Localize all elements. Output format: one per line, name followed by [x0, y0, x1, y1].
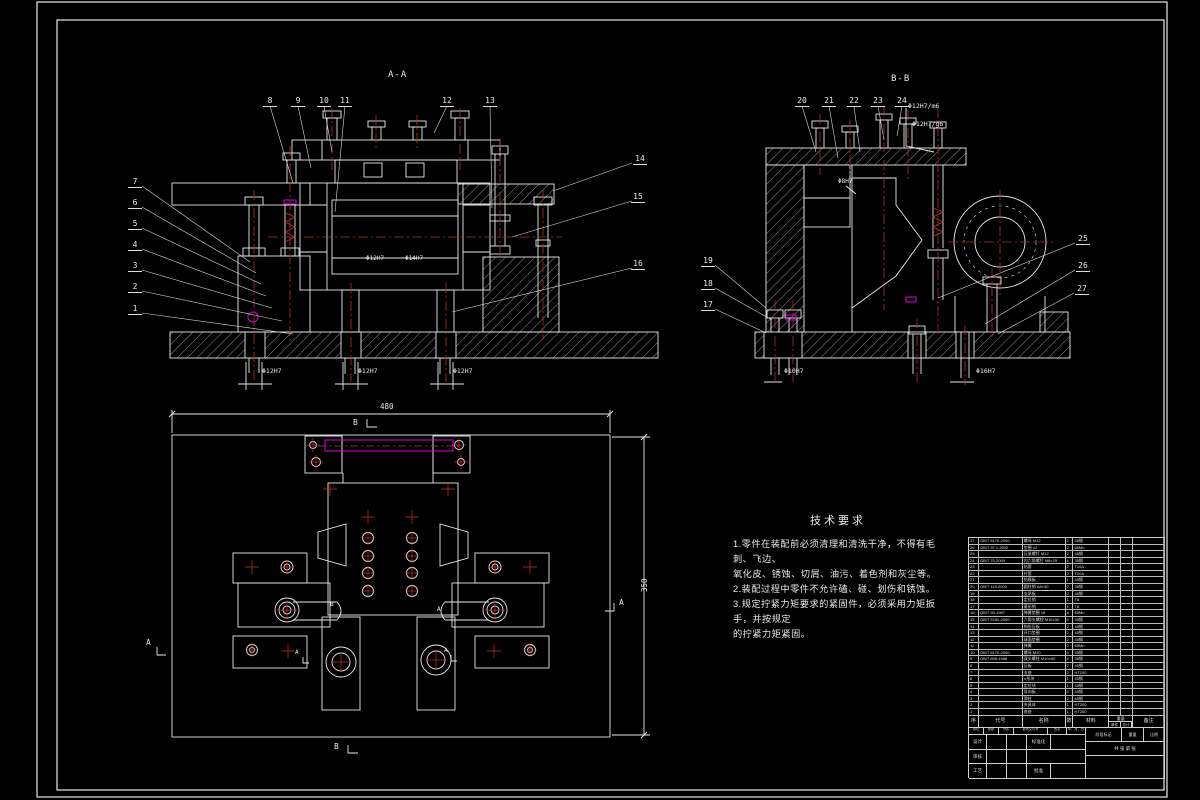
- parts-cell: [1133, 604, 1165, 611]
- parts-row: 26GB/T 97.1-2002垫圈 12265Mn: [969, 545, 1165, 552]
- parts-cell: 3: [969, 696, 979, 703]
- tech-req-line: 2.装配过程中零件不允许磕、碰、划伤和锈蚀。: [733, 582, 943, 597]
- parts-cell: [1133, 656, 1165, 663]
- front-highlights: [248, 200, 296, 322]
- side-view-geometry: [755, 108, 1070, 382]
- parts-row: 16GB/T 93-1987弹簧垫圈 16465Mn: [969, 610, 1165, 617]
- parts-cell: 2: [969, 702, 979, 709]
- parts-cell: [1109, 571, 1121, 578]
- parts-cell: [1121, 577, 1133, 584]
- parts-row: 2夹具体1HT200: [969, 702, 1165, 709]
- parts-cell: 4: [1066, 650, 1074, 657]
- parts-cell: [1121, 650, 1133, 657]
- parts-cell: [1133, 709, 1165, 716]
- parts-cell: [1121, 696, 1133, 703]
- parts-cell: [979, 564, 1023, 571]
- parts-cell: [1109, 591, 1121, 598]
- callout-7: 7: [128, 177, 142, 188]
- parts-cell: 支座: [1023, 670, 1066, 677]
- parts-cell: [979, 676, 1023, 683]
- parts-cell: 24: [969, 558, 979, 565]
- parts-cell: T8: [1073, 604, 1109, 611]
- parts-cell: T10A: [1073, 571, 1109, 578]
- parts-cell: 15: [969, 617, 979, 624]
- parts-cell: 45钢: [1073, 624, 1109, 631]
- callout-3: 3: [128, 261, 142, 272]
- tb-stage: 阶段标记: [1086, 728, 1122, 742]
- front-view-geometry: [170, 111, 658, 390]
- parts-cell: [1133, 610, 1165, 617]
- tb-check-date: [1007, 750, 1027, 764]
- callout-24: 24: [895, 96, 909, 107]
- parts-cell: [1133, 538, 1165, 545]
- parts-cell: [1109, 558, 1121, 565]
- parts-row: 11弹簧265Mn: [969, 643, 1165, 650]
- parts-cell: [979, 683, 1023, 690]
- parts-cell: 2: [1066, 564, 1074, 571]
- tb-design: 设计: [969, 735, 987, 750]
- side-highlights: [786, 297, 916, 320]
- callout-10: 10: [317, 96, 331, 107]
- parts-cell: [1133, 617, 1165, 624]
- callout-12: 12: [440, 96, 454, 107]
- parts-cell: 垫圈 12: [1023, 545, 1066, 552]
- parts-cell: 弹簧垫圈 16: [1023, 610, 1066, 617]
- parts-cell: 六角头螺栓 M16×50: [1023, 617, 1066, 624]
- parts-cell: [1109, 597, 1121, 604]
- tb-weight: 重量: [1122, 728, 1144, 742]
- parts-cell: [979, 577, 1023, 584]
- parts-cell: 4: [1066, 617, 1074, 624]
- parts-cell: 球面垫圈: [1023, 637, 1066, 644]
- tb-cell-blank: [1027, 750, 1086, 764]
- tb-count: 处数: [984, 728, 999, 735]
- parts-row: 3滑柱245钢: [969, 696, 1165, 703]
- section-label-front: A-A: [388, 70, 407, 80]
- dim-plan-width: 480: [380, 402, 394, 411]
- dim-side-fit-2: Φ12H7/g6: [912, 120, 943, 128]
- tb-check: 审核: [969, 750, 987, 764]
- callout-8: 8: [263, 96, 277, 107]
- callout-15: 15: [631, 192, 645, 203]
- tech-req-line: 的拧紧力矩紧固。: [733, 627, 943, 642]
- callout-4: 4: [128, 240, 142, 251]
- callout-11: 11: [338, 96, 352, 107]
- parts-row: 23钻套2T10A: [969, 564, 1165, 571]
- parts-cell: 27: [969, 538, 979, 545]
- tech-req-line: 3.规定拧紧力矩要求的紧固件，必须采用力矩扳手，并按规定: [733, 597, 943, 627]
- parts-cell: 2: [1066, 571, 1074, 578]
- parts-cell: [1109, 610, 1121, 617]
- parts-cell: [1121, 643, 1133, 650]
- tb-zone: 分区: [999, 728, 1014, 735]
- parts-cell: [1121, 670, 1133, 677]
- parts-cell: GB/T 6170-2000: [979, 538, 1023, 545]
- view-mark-a-leg-right: A: [444, 647, 448, 654]
- parts-cell: [1109, 637, 1121, 644]
- parts-cell: 14: [969, 624, 979, 631]
- parts-cell: [1121, 545, 1133, 552]
- parts-cell: [1133, 702, 1165, 709]
- parts-cell: 45钢: [1073, 696, 1109, 703]
- parts-cell: 钻模板: [1023, 577, 1066, 584]
- parts-cell: 双头螺柱 M10×60: [1023, 656, 1066, 663]
- parts-cell: 2: [1066, 689, 1074, 696]
- tb-design-sign: [987, 735, 1007, 750]
- parts-cell: [1109, 663, 1121, 670]
- parts-cell: 45钢: [1073, 683, 1109, 690]
- parts-row: 17菱形销1T8: [969, 604, 1165, 611]
- parts-cell: 压紧螺钉 M12: [1023, 551, 1066, 558]
- header-material: 材料: [1073, 716, 1109, 728]
- parts-cell: [979, 696, 1023, 703]
- title-block: 标记 处数 分区 更改文件号 签名 年、月、日 设计 标准化 审核 工艺 批准 …: [969, 728, 1165, 779]
- parts-cell: [1133, 597, 1165, 604]
- parts-row: 8压板245钢: [969, 663, 1165, 670]
- parts-cell: [1121, 637, 1133, 644]
- parts-row: 9GB/T 898-1988双头螺柱 M10×60435钢: [969, 656, 1165, 663]
- parts-cell: 21: [969, 577, 979, 584]
- parts-cell: 45钢: [1073, 591, 1109, 598]
- callout-2: 2: [128, 282, 142, 293]
- parts-row: 5定位块145钢: [969, 683, 1165, 690]
- parts-row: 18定位销1T8: [969, 597, 1165, 604]
- parts-list: 27GB/T 6170-2000螺母 M12235钢26GB/T 97.1-20…: [968, 537, 1165, 778]
- parts-cell: [1109, 643, 1121, 650]
- parts-cell: 20: [969, 584, 979, 591]
- dim-front-bottom-2: Φ12H7: [358, 367, 378, 375]
- tb-changefile: 更改文件号: [1014, 728, 1048, 735]
- parts-cell: [1133, 571, 1165, 578]
- parts-row: 20GB/T 119-2000圆柱销 A8×30235钢: [969, 584, 1165, 591]
- parts-cell: [1121, 564, 1133, 571]
- parts-cell: 1: [1066, 676, 1074, 683]
- parts-cell: [1133, 624, 1165, 631]
- parts-row: 12球面垫圈245钢: [969, 637, 1165, 644]
- parts-row: 22衬套2T10A: [969, 571, 1165, 578]
- parts-cell: 35钢: [1073, 584, 1109, 591]
- parts-cell: 2: [1066, 663, 1074, 670]
- tb-check-sign: [987, 750, 1007, 764]
- tech-req-line: 氧化皮、锈蚀、切屑、油污、着色剂和灰尘等。: [733, 567, 943, 582]
- parts-cell: GB/T 70-2000: [979, 558, 1023, 565]
- parts-cell: 螺母 M12: [1023, 538, 1066, 545]
- parts-cell: 4: [969, 689, 979, 696]
- tb-standard: 标准化: [1027, 735, 1051, 750]
- parts-cell: [1133, 670, 1165, 677]
- callout-1: 1: [128, 304, 142, 315]
- parts-cell: 滑柱: [1023, 696, 1066, 703]
- parts-cell: 2: [1066, 630, 1074, 637]
- cad-drawing-canvas: A-A B-B 8 9 10 11 12 13 7 6 5 4 3 2 1 14…: [0, 0, 1200, 800]
- parts-cell: [979, 689, 1023, 696]
- parts-cell: 2: [1066, 551, 1074, 558]
- parts-cell: 1: [969, 709, 979, 716]
- parts-cell: HT200: [1073, 702, 1109, 709]
- parts-cell: [1133, 630, 1165, 637]
- plan-highlight-strip: [325, 440, 453, 451]
- parts-row: 21钻模板145钢: [969, 577, 1165, 584]
- callout-14: 14: [633, 154, 647, 165]
- callout-22: 22: [847, 96, 861, 107]
- parts-cell: [1121, 709, 1133, 716]
- tb-design-date: [1007, 735, 1027, 750]
- parts-cell: 2: [1066, 545, 1074, 552]
- dim-front-mid-1: Φ12H7: [366, 255, 384, 262]
- parts-cell: GB/T 93-1987: [979, 610, 1023, 617]
- parts-cell: GB/T 119-2000: [979, 584, 1023, 591]
- parts-cell: [979, 643, 1023, 650]
- tb-process-date: [1007, 764, 1027, 779]
- plan-view-geometry: [157, 410, 650, 753]
- section-label-side: B-B: [891, 74, 910, 84]
- parts-cell: 65Mn: [1073, 643, 1109, 650]
- parts-cell: 45钢: [1073, 663, 1109, 670]
- parts-cell: [1121, 591, 1133, 598]
- tb-cell-blank: [1051, 764, 1086, 779]
- parts-cell: [1109, 702, 1121, 709]
- parts-cell: 25: [969, 551, 979, 558]
- parts-cell: 23: [969, 564, 979, 571]
- parts-cell: V形块: [1023, 676, 1066, 683]
- callout-5: 5: [128, 219, 142, 230]
- parts-cell: 7: [969, 670, 979, 677]
- parts-cell: [1121, 676, 1133, 683]
- parts-cell: 4: [1066, 558, 1074, 565]
- parts-cell: 35钢: [1073, 538, 1109, 545]
- tb-sheets: 共 张 第 张: [1086, 742, 1165, 756]
- view-mark-a-left: A: [146, 638, 151, 647]
- parts-cell: [1109, 577, 1121, 584]
- parts-cell: HT200: [1073, 670, 1109, 677]
- parts-cell: 螺母 M10: [1023, 650, 1066, 657]
- parts-row: 6V形块145钢: [969, 676, 1165, 683]
- parts-cell: 导向板: [1023, 689, 1066, 696]
- tb-drawing-number: [1086, 756, 1165, 779]
- parts-cell: [979, 571, 1023, 578]
- parts-cell: [1109, 630, 1121, 637]
- parts-cell: 19: [969, 591, 979, 598]
- callout-18: 18: [701, 279, 715, 290]
- parts-cell: 9: [969, 656, 979, 663]
- parts-cell: [1133, 683, 1165, 690]
- dim-plan-height: 350: [640, 578, 649, 592]
- parts-cell: [1109, 696, 1121, 703]
- header-weight-group: 重量 单件 总计: [1109, 716, 1133, 728]
- parts-cell: [1109, 650, 1121, 657]
- parts-cell: [1133, 545, 1165, 552]
- parts-cell: GB/T 6170-2000: [979, 650, 1023, 657]
- plan-crosshairs: [245, 438, 537, 672]
- parts-cell: [1121, 538, 1133, 545]
- parts-row: 25压紧螺钉 M12245钢: [969, 551, 1165, 558]
- parts-cell: 钩形压板: [1023, 624, 1066, 631]
- parts-cell: [1133, 637, 1165, 644]
- parts-cell: 18: [969, 597, 979, 604]
- view-mark-a-inner: A: [437, 606, 441, 613]
- view-mark-b-bottom: B: [334, 742, 339, 751]
- parts-cell: 定位块: [1023, 683, 1066, 690]
- callout-13: 13: [483, 96, 497, 107]
- parts-row: 14钩形压板245钢: [969, 624, 1165, 631]
- parts-cell: [979, 670, 1023, 677]
- parts-cell: 4: [1066, 656, 1074, 663]
- parts-cell: 12: [969, 637, 979, 644]
- parts-cell: 8: [969, 663, 979, 670]
- parts-cell: [1121, 604, 1133, 611]
- parts-cell: [1121, 683, 1133, 690]
- parts-cell: 45钢: [1073, 689, 1109, 696]
- dim-front-bottom-3: Φ12H7: [453, 367, 473, 375]
- tb-scale: 比例: [1144, 728, 1165, 742]
- view-mark-a-right: A: [619, 598, 624, 607]
- parts-cell: [979, 702, 1023, 709]
- parts-cell: [1121, 689, 1133, 696]
- callout-9: 9: [291, 96, 305, 107]
- parts-cell: 35钢: [1073, 650, 1109, 657]
- parts-cell: 2: [1066, 624, 1074, 631]
- parts-cell: [1109, 564, 1121, 571]
- callout-25: 25: [1076, 234, 1090, 245]
- dim-front-bottom-1: Φ12H7: [262, 367, 282, 375]
- parts-cell: [1133, 591, 1165, 598]
- technical-requirements: 技术要求 1.零件在装配前必须清理和清洗干净，不得有毛刺、飞边、 氧化皮、锈蚀、…: [733, 512, 943, 642]
- parts-cell: [1133, 696, 1165, 703]
- parts-row: 27GB/T 6170-2000螺母 M12235钢: [969, 538, 1165, 545]
- parts-row: 13开口垫圈245钢: [969, 630, 1165, 637]
- parts-cell: [1109, 676, 1121, 683]
- parts-cell: T10A: [1073, 564, 1109, 571]
- parts-cell: 45钢: [1073, 637, 1109, 644]
- parts-cell: [1121, 617, 1133, 624]
- parts-cell: 26: [969, 545, 979, 552]
- parts-cell: [1109, 584, 1121, 591]
- parts-cell: 菱形销: [1023, 604, 1066, 611]
- parts-cell: [1133, 643, 1165, 650]
- parts-cell: 2: [1066, 584, 1074, 591]
- tb-sign: 签名: [1048, 728, 1067, 735]
- parts-cell: 6: [969, 676, 979, 683]
- tb-mark: 标记: [969, 728, 984, 735]
- parts-cell: 10: [969, 650, 979, 657]
- parts-cell: [1121, 702, 1133, 709]
- parts-cell: [1109, 709, 1121, 716]
- tb-cell-blank: [1051, 735, 1086, 750]
- parts-cell: 65Mn: [1073, 610, 1109, 617]
- callout-16: 16: [631, 259, 645, 270]
- parts-cell: 17: [969, 604, 979, 611]
- tb-process: 工艺: [969, 764, 987, 779]
- parts-cell: 圆柱销 A8×30: [1023, 584, 1066, 591]
- tb-date: 年、月、日: [1067, 728, 1086, 735]
- parts-cell: [979, 630, 1023, 637]
- parts-cell: 45钢: [1073, 577, 1109, 584]
- parts-cell: [1133, 663, 1165, 670]
- parts-cell: [979, 604, 1023, 611]
- parts-list-header: 序号 代号 名称 数量 材料 重量 单件 总计 备注: [969, 716, 1165, 728]
- parts-cell: [1133, 650, 1165, 657]
- callout-23: 23: [871, 96, 885, 107]
- parts-cell: [979, 663, 1023, 670]
- parts-cell: 45钢: [1073, 551, 1109, 558]
- parts-cell: [1109, 624, 1121, 631]
- parts-cell: [1121, 610, 1133, 617]
- parts-cell: 1: [1066, 702, 1074, 709]
- callout-21: 21: [822, 96, 836, 107]
- header-remark: 备注: [1133, 716, 1165, 728]
- parts-cell: [1133, 558, 1165, 565]
- parts-cell: GB/T 898-1988: [979, 656, 1023, 663]
- parts-cell: [1109, 683, 1121, 690]
- parts-cell: 35钢: [1073, 656, 1109, 663]
- parts-cell: GB/T 5782-2000: [979, 617, 1023, 624]
- tb-approve: 批准: [1027, 764, 1051, 779]
- parts-cell: [979, 597, 1023, 604]
- technical-requirements-title: 技术要求: [733, 512, 943, 528]
- parts-cell: 定位销: [1023, 597, 1066, 604]
- parts-cell: [1121, 663, 1133, 670]
- parts-cell: 22: [969, 571, 979, 578]
- parts-cell: [1109, 670, 1121, 677]
- parts-cell: 内六角螺钉 M8×25: [1023, 558, 1066, 565]
- parts-cell: [979, 709, 1023, 716]
- parts-cell: [979, 637, 1023, 644]
- view-mark-b-inner: B: [330, 601, 334, 608]
- parts-cell: 衬套: [1023, 571, 1066, 578]
- parts-cell: [979, 591, 1023, 598]
- parts-cell: [1133, 577, 1165, 584]
- callout-6: 6: [128, 198, 142, 209]
- dim-side-bottom-1: Φ10H7: [784, 367, 804, 375]
- parts-cell: 13: [969, 630, 979, 637]
- parts-cell: 2: [1066, 637, 1074, 644]
- parts-cell: [1121, 656, 1133, 663]
- callout-27: 27: [1075, 284, 1089, 295]
- parts-cell: [979, 551, 1023, 558]
- parts-row: 7支座2HT200: [969, 670, 1165, 677]
- parts-cell: [1133, 676, 1165, 683]
- parts-cell: [1133, 584, 1165, 591]
- parts-cell: 16: [969, 610, 979, 617]
- tb-process-sign: [987, 764, 1007, 779]
- dim-side-fit-1: Φ12H7/m6: [908, 102, 939, 110]
- parts-cell: 4: [1066, 610, 1074, 617]
- parts-cell: HT200: [1073, 709, 1109, 716]
- parts-cell: 底座: [1023, 709, 1066, 716]
- parts-cell: 1: [1066, 709, 1074, 716]
- parts-cell: 35钢: [1073, 617, 1109, 624]
- callout-19: 19: [701, 256, 715, 267]
- parts-row: 19支承板245钢: [969, 591, 1165, 598]
- parts-cell: 压板: [1023, 663, 1066, 670]
- parts-cell: 2: [1066, 538, 1074, 545]
- parts-cell: T8: [1073, 597, 1109, 604]
- parts-cell: 45钢: [1073, 630, 1109, 637]
- dim-front-mid-2: Φ14H7: [405, 255, 423, 262]
- parts-cell: 45钢: [1073, 676, 1109, 683]
- parts-cell: [1121, 551, 1133, 558]
- header-name: 名称: [1023, 716, 1066, 728]
- parts-cell: 11: [969, 643, 979, 650]
- parts-cell: 支承板: [1023, 591, 1066, 598]
- callout-17: 17: [701, 300, 715, 311]
- parts-cell: [1133, 689, 1165, 696]
- parts-cell: 夹具体: [1023, 702, 1066, 709]
- parts-cell: [1109, 551, 1121, 558]
- parts-cell: [1133, 564, 1165, 571]
- parts-cell: [1109, 604, 1121, 611]
- parts-row: 4导向板245钢: [969, 689, 1165, 696]
